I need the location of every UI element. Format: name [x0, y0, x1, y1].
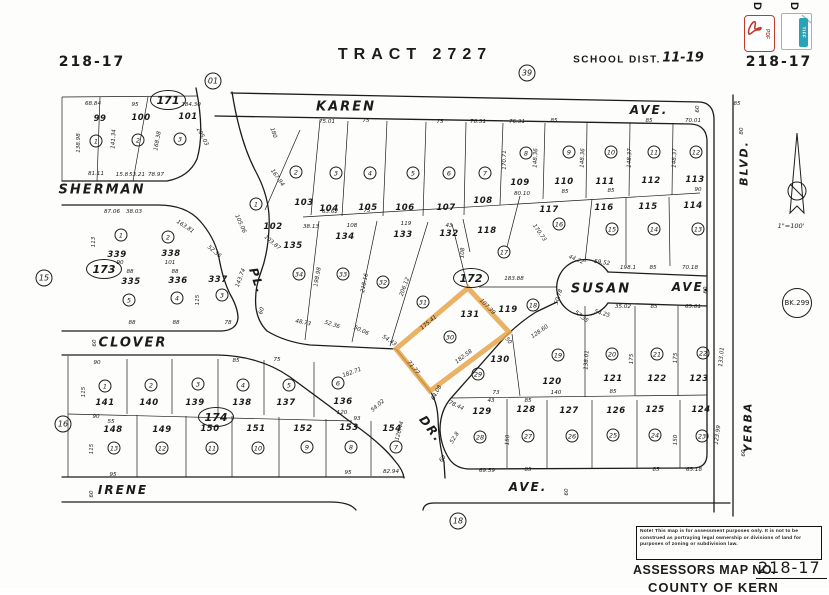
dimension-label: 88 — [172, 320, 179, 326]
lot-circle: 3 — [216, 289, 229, 302]
tiff-file-icon[interactable]: TIFF — [781, 13, 812, 50]
dimension-label: 85 — [524, 398, 531, 404]
lot-number: 106 — [395, 203, 414, 213]
lot-number: 148 — [103, 425, 122, 435]
lot-circle: 25 — [607, 429, 620, 442]
dimension-label: 95 — [109, 472, 116, 478]
lot-number: 116 — [594, 203, 613, 213]
lot-number: 113 — [685, 175, 704, 185]
dimension-label: 101 — [165, 260, 176, 266]
map-reference-01: 01 — [205, 73, 222, 90]
dimension-label: 76.31 — [470, 119, 486, 125]
street-label: KAREN — [316, 100, 376, 115]
lot-number: 338 — [161, 249, 180, 259]
lot-circle: 12 — [690, 146, 703, 159]
dimension-label: 38.13 — [303, 224, 319, 230]
lot-number: 130 — [490, 355, 509, 365]
lot-circle: 1 — [250, 198, 263, 211]
dimension-label: 148.37 — [627, 148, 634, 168]
map-reference-173: 173 — [86, 259, 122, 279]
assessors-map-number: 218-17 — [756, 558, 827, 579]
lot-circle: 6 — [443, 167, 456, 180]
lot-circle: 19 — [552, 349, 565, 362]
dimension-label: 69.59 — [479, 468, 495, 474]
dimension-label: 35.02 — [615, 304, 631, 310]
dimension-label: 119 — [401, 221, 412, 227]
assessment-note: Note! This map is for assessment purpose… — [636, 526, 822, 560]
dimension-label: 15.8 — [116, 172, 128, 178]
street-label: AVE. — [509, 480, 548, 494]
dimension-label: 70.18 — [682, 265, 698, 271]
lot-circle: 27 — [522, 430, 535, 443]
street-label: SUSAN — [571, 282, 631, 297]
lot-number: 138 — [232, 398, 251, 408]
lot-number: 128 — [516, 405, 535, 415]
lot-number: 154 — [382, 424, 401, 434]
dimension-label: 140 — [551, 390, 562, 396]
dimension-label: 148.36 — [533, 148, 540, 168]
dimension-label: 183.88 — [504, 276, 524, 282]
lot-number: 132 — [439, 229, 458, 239]
map-reference-18: 18 — [450, 513, 467, 530]
lot-number: 103 — [294, 198, 313, 208]
lot-number: 105 — [358, 203, 377, 213]
dimension-label: 76.31 — [509, 119, 525, 125]
dimension-label: 150 — [673, 435, 679, 446]
north-arrow-icon — [788, 133, 806, 213]
lot-number: 123 — [689, 374, 708, 384]
dimension-label: 73 — [492, 390, 499, 396]
lot-circle: 22 — [697, 347, 710, 360]
dimension-label: 95 — [344, 470, 351, 476]
lot-number: 108 — [473, 196, 492, 206]
dimension-label: 53.21 — [129, 172, 145, 178]
dimension-label: 95 — [131, 102, 138, 108]
dimension-label: 85 — [652, 467, 659, 473]
dimension-label: 60 — [703, 286, 709, 293]
lot-number: 115 — [638, 202, 657, 212]
lot-number: 112 — [641, 176, 660, 186]
dimension-label: 65.01 — [685, 304, 701, 310]
lot-circle: 11 — [648, 146, 661, 159]
lot-number: 131 — [460, 310, 479, 320]
dimension-label: 43 — [487, 398, 494, 404]
map-reference-172: 172 — [453, 268, 489, 288]
tiff-folded-corner — [782, 14, 813, 51]
school-district-label: SCHOOL DIST. — [573, 55, 661, 66]
lot-circle: 17 — [498, 246, 511, 259]
dimension-label: 38.03 — [126, 209, 142, 215]
lot-number: 102 — [263, 222, 282, 232]
lot-number: 337 — [208, 275, 227, 285]
map-reference-174: 174 — [198, 407, 234, 427]
dimension-label: 141.34 — [110, 129, 117, 149]
lot-circle: 3 — [192, 378, 205, 391]
sheet-number-left: 218-17 — [59, 54, 126, 70]
map-reference-BK.299: BK.299 — [782, 288, 812, 318]
street-label: BLVD. — [738, 140, 751, 186]
lot-number: 149 — [152, 425, 171, 435]
lot-circle: 11 — [206, 442, 219, 455]
dimension-label: 85 — [524, 467, 531, 473]
lot-circle: 8 — [345, 441, 358, 454]
street-label: SHERMAN — [58, 183, 145, 198]
lot-circle: 8 — [520, 147, 533, 160]
street-label: CLOVER — [99, 336, 168, 351]
lot-circle: 31 — [417, 296, 430, 309]
lot-number: 125 — [645, 405, 664, 415]
lot-number: 136 — [333, 397, 352, 407]
lot-number: 133 — [393, 230, 412, 240]
dimension-label: 138.01 — [583, 350, 590, 370]
lot-circle: 1 — [90, 135, 103, 148]
school-district-value: 11-19 — [662, 51, 704, 66]
dimension-label: 150 — [505, 435, 512, 446]
lot-number: 110 — [554, 177, 573, 187]
lot-circle: 2 — [132, 134, 145, 147]
scale-label: 1"=100' — [778, 222, 805, 230]
dimension-label: 75.01 — [319, 119, 335, 125]
lot-number: 126 — [606, 406, 625, 416]
dimension-label: 60 — [89, 490, 95, 497]
street-label: YERBA — [742, 402, 755, 453]
dimension-label: 138.98 — [76, 133, 82, 153]
tiff-download-label[interactable]: D — [788, 2, 800, 10]
lot-number: 127 — [559, 406, 578, 416]
assessors-map-label: ASSESSORS MAP NO. — [633, 563, 776, 577]
street-label: AVE. — [630, 103, 669, 117]
dimension-label: 148.37 — [672, 148, 679, 168]
lot-circle: 12 — [156, 442, 169, 455]
lot-number: 107 — [436, 203, 455, 213]
lot-circle: 9 — [301, 441, 314, 454]
dimension-label: 93 — [353, 416, 360, 422]
dimension-label: 120 — [337, 410, 348, 416]
lot-circle: 6 — [332, 377, 345, 390]
dimension-label: 80.10 — [514, 191, 530, 197]
map-sheet: 218-17 TRACT 2727 SCHOOL DIST. 11-19 218… — [0, 0, 829, 588]
lot-circle: 3 — [330, 167, 343, 180]
lot-circle: 2 — [145, 379, 158, 392]
lot-circle: 18 — [527, 299, 540, 312]
lot-circle: 29 — [472, 368, 485, 381]
lot-circle: 14 — [648, 223, 661, 236]
lot-number: 104 — [319, 204, 338, 214]
lot-circle: 26 — [566, 430, 579, 443]
pdf-type-label: PDF — [764, 29, 770, 39]
dimension-label: 68.84 — [85, 101, 101, 107]
lot-number: 118 — [477, 226, 496, 236]
lot-circle: 33 — [337, 268, 350, 281]
lot-number: 129 — [472, 407, 491, 417]
dimension-label: 85 — [649, 265, 656, 271]
dimension-label: 78 — [224, 320, 231, 326]
lot-circle: 7 — [390, 441, 403, 454]
dimension-label: 85 — [609, 389, 616, 395]
dimension-label: 85 — [645, 118, 652, 124]
dimension-label: 148.36 — [580, 148, 587, 168]
dimension-label: 198.1 — [620, 265, 636, 271]
lot-circle: 10 — [605, 146, 618, 159]
lot-circle: 13 — [692, 223, 705, 236]
dimension-label: 65.18 — [686, 467, 702, 473]
lot-number: 124 — [691, 405, 710, 415]
lot-circle: 2 — [290, 166, 303, 179]
lot-circle: 30 — [444, 331, 457, 344]
lot-circle: 1 — [99, 380, 112, 393]
lot-number: 137 — [276, 398, 295, 408]
lot-number: 135 — [283, 241, 302, 251]
pdf-glyph — [745, 16, 765, 38]
lot-number: 139 — [185, 398, 204, 408]
dimension-label: 115 — [81, 387, 87, 398]
lot-number: 101 — [178, 112, 197, 122]
dimension-label: 175 — [673, 353, 679, 364]
pdf-download-label[interactable]: D — [751, 2, 763, 10]
map-reference-39: 39 — [519, 65, 536, 82]
lot-circle: 3 — [174, 133, 187, 146]
pdf-file-icon[interactable]: PDF — [744, 15, 775, 52]
dimension-label: 90 — [694, 187, 701, 193]
lot-circle: 10 — [252, 442, 265, 455]
lot-number: 111 — [595, 177, 614, 187]
dimension-label: 90 — [93, 360, 100, 366]
dimension-label: 70.01 — [685, 118, 701, 124]
map-reference-171: 171 — [150, 90, 186, 110]
lot-number: 141 — [95, 398, 114, 408]
sheet-number-right: 218-17 — [746, 54, 813, 70]
lot-number: 122 — [647, 374, 666, 384]
lot-number: 153 — [339, 423, 358, 433]
lot-number: 140 — [139, 398, 158, 408]
dimension-label: 108 — [460, 247, 467, 258]
dimension-label: 113 — [91, 237, 97, 248]
dimension-label: 115 — [89, 444, 95, 455]
dimension-label: 115 — [195, 295, 201, 306]
dimension-label: 88 — [171, 269, 178, 275]
lot-circle: 34 — [293, 268, 306, 281]
dimension-label: 85 — [550, 118, 557, 124]
dimension-label: 108 — [347, 223, 358, 229]
lot-number: 121 — [603, 374, 622, 384]
lot-number: 117 — [539, 205, 558, 215]
lot-circle: 5 — [283, 379, 296, 392]
dimension-label: 87.06 — [104, 209, 120, 215]
lot-number: 100 — [131, 113, 150, 123]
dimension-label: 175 — [629, 354, 635, 365]
lot-circle: 7 — [479, 167, 492, 180]
lot-circle: 13 — [108, 442, 121, 455]
dimension-label: 78.97 — [148, 172, 164, 178]
lot-number: 152 — [293, 424, 312, 434]
lot-circle: 32 — [377, 276, 390, 289]
lot-circle: 28 — [474, 431, 487, 444]
lot-number: 336 — [168, 276, 187, 286]
dimension-label: 81.11 — [88, 171, 104, 177]
tiff-type-label: TIFF — [801, 27, 806, 39]
dimension-label: 90 — [92, 414, 99, 420]
lot-number: 114 — [683, 201, 702, 211]
dimension-label: 60 — [92, 339, 98, 346]
lot-circle: 5 — [407, 167, 420, 180]
dimension-label: 60 — [564, 488, 570, 495]
dimension-label: 75 — [362, 118, 369, 124]
lot-circle: 15 — [606, 223, 619, 236]
dimension-label: 60 — [741, 449, 747, 456]
lot-number: 339 — [107, 250, 126, 260]
dimension-label: 60 — [695, 105, 701, 112]
tract-title: TRACT 2727 — [338, 46, 492, 64]
lot-circle: 9 — [563, 146, 576, 159]
dimension-label: 170.71 — [502, 150, 508, 170]
lot-number: 120 — [542, 377, 561, 387]
lot-circle: 24 — [649, 429, 662, 442]
dimension-label: 75 — [436, 119, 443, 125]
lot-number: 99 — [94, 114, 107, 124]
lot-circle: 21 — [651, 348, 664, 361]
lot-circle: 5 — [123, 294, 136, 307]
tiff-band: TIFF — [799, 18, 808, 47]
lot-circle: 1 — [115, 229, 128, 242]
lot-circle: 4 — [171, 292, 184, 305]
dimension-label: 85 — [232, 358, 239, 364]
street-label: IRENE — [98, 483, 148, 497]
dimension-label: 85 — [607, 188, 614, 194]
lot-circle: 20 — [606, 348, 619, 361]
lot-number: 119 — [498, 305, 517, 315]
lot-number: 335 — [121, 277, 140, 287]
map-reference-15: 15 — [36, 270, 53, 287]
lot-number: 109 — [510, 178, 529, 188]
lot-circle: 16 — [553, 218, 566, 231]
lot-circle: 4 — [237, 379, 250, 392]
dimension-label: 88 — [126, 269, 133, 275]
lot-circle: 4 — [364, 167, 377, 180]
dimension-label: 82.94 — [383, 469, 399, 475]
lot-circle: 2 — [162, 231, 175, 244]
dimension-label: 88 — [128, 320, 135, 326]
dimension-label: 80 — [739, 127, 745, 134]
dimension-label: 85 — [561, 189, 568, 195]
map-reference-16: 16 — [55, 416, 72, 433]
dimension-label: 85 — [650, 304, 657, 310]
dimension-label: 75 — [273, 357, 280, 363]
lot-number: 134 — [335, 232, 354, 242]
lot-circle: 23 — [696, 430, 709, 443]
lot-number: 151 — [246, 424, 265, 434]
dimension-label: 85 — [733, 101, 740, 107]
